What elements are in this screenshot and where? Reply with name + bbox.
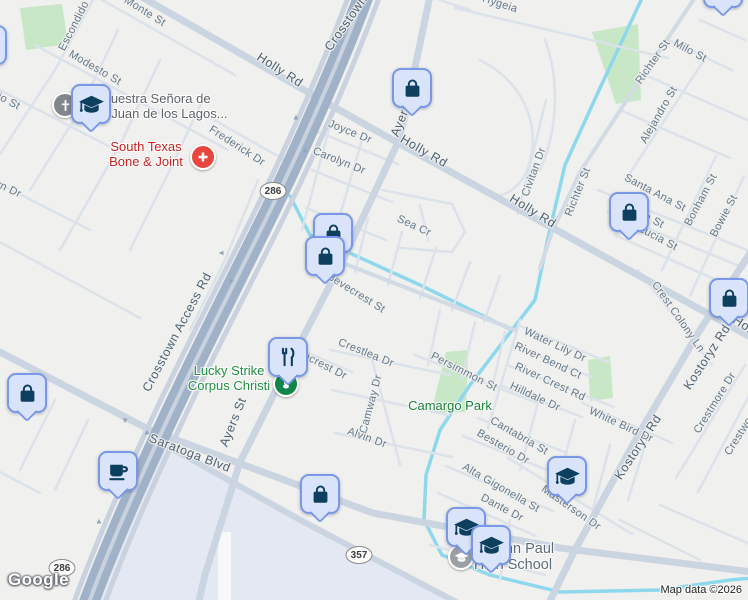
traffic-direction-arrow: ▲ [292,113,300,122]
shopping-bag-icon [618,201,641,224]
south-texas-bone-and-joint-label[interactable]: South TexasBone & Joint [109,140,183,169]
route-shield: 286 [260,182,287,200]
map-canvas[interactable]: CrosstownCrosstown Access RdHolly RdHoll… [0,0,748,600]
school-marker[interactable] [71,84,111,124]
shopping-bag-icon [309,483,332,506]
traffic-direction-arrow: ▲ [217,249,226,257]
shopping-bag-icon [401,77,424,100]
google-logo[interactable]: Google [8,570,69,590]
shopping-bag-marker[interactable] [305,236,345,276]
shopping-bag-icon [16,382,39,405]
shopping-bag-marker[interactable] [7,373,47,413]
graduation-cap-icon [78,91,105,118]
coffee-marker[interactable] [98,451,138,491]
building-strip [218,532,231,600]
school-marker[interactable] [471,525,511,565]
shopping-bag-marker[interactable] [0,25,7,65]
coffee-cup-icon [106,459,131,484]
traffic-direction-arrow: ▲ [95,517,103,526]
shopping-bag-marker[interactable] [609,192,649,232]
camargo-park-label[interactable]: Camargo Park [408,399,492,414]
traffic-direction-arrow: ▲ [121,417,129,426]
graduation-cap-icon [478,532,505,559]
shopping-bag-marker[interactable] [300,474,340,514]
traffic-direction-arrow: ▲ [301,146,309,155]
hospital-poi-icon[interactable] [190,144,216,170]
lucky-strike-label[interactable]: Lucky StrikeCorpus Christi [188,364,270,393]
restaurant-icon [277,346,299,368]
restaurant-marker[interactable] [268,337,308,377]
school-marker[interactable] [547,456,587,496]
route-shield: 357 [346,546,373,564]
traffic-direction-arrow: ▲ [228,277,237,285]
graduation-cap-icon [554,463,581,490]
shopping-bag-marker[interactable] [703,0,743,8]
shopping-bag-marker[interactable] [392,68,432,108]
shopping-bag-icon [314,245,337,268]
map-attribution: Map data ©2026 [661,584,743,596]
shopping-bag-marker[interactable] [709,278,748,318]
shopping-bag-icon [718,287,741,310]
